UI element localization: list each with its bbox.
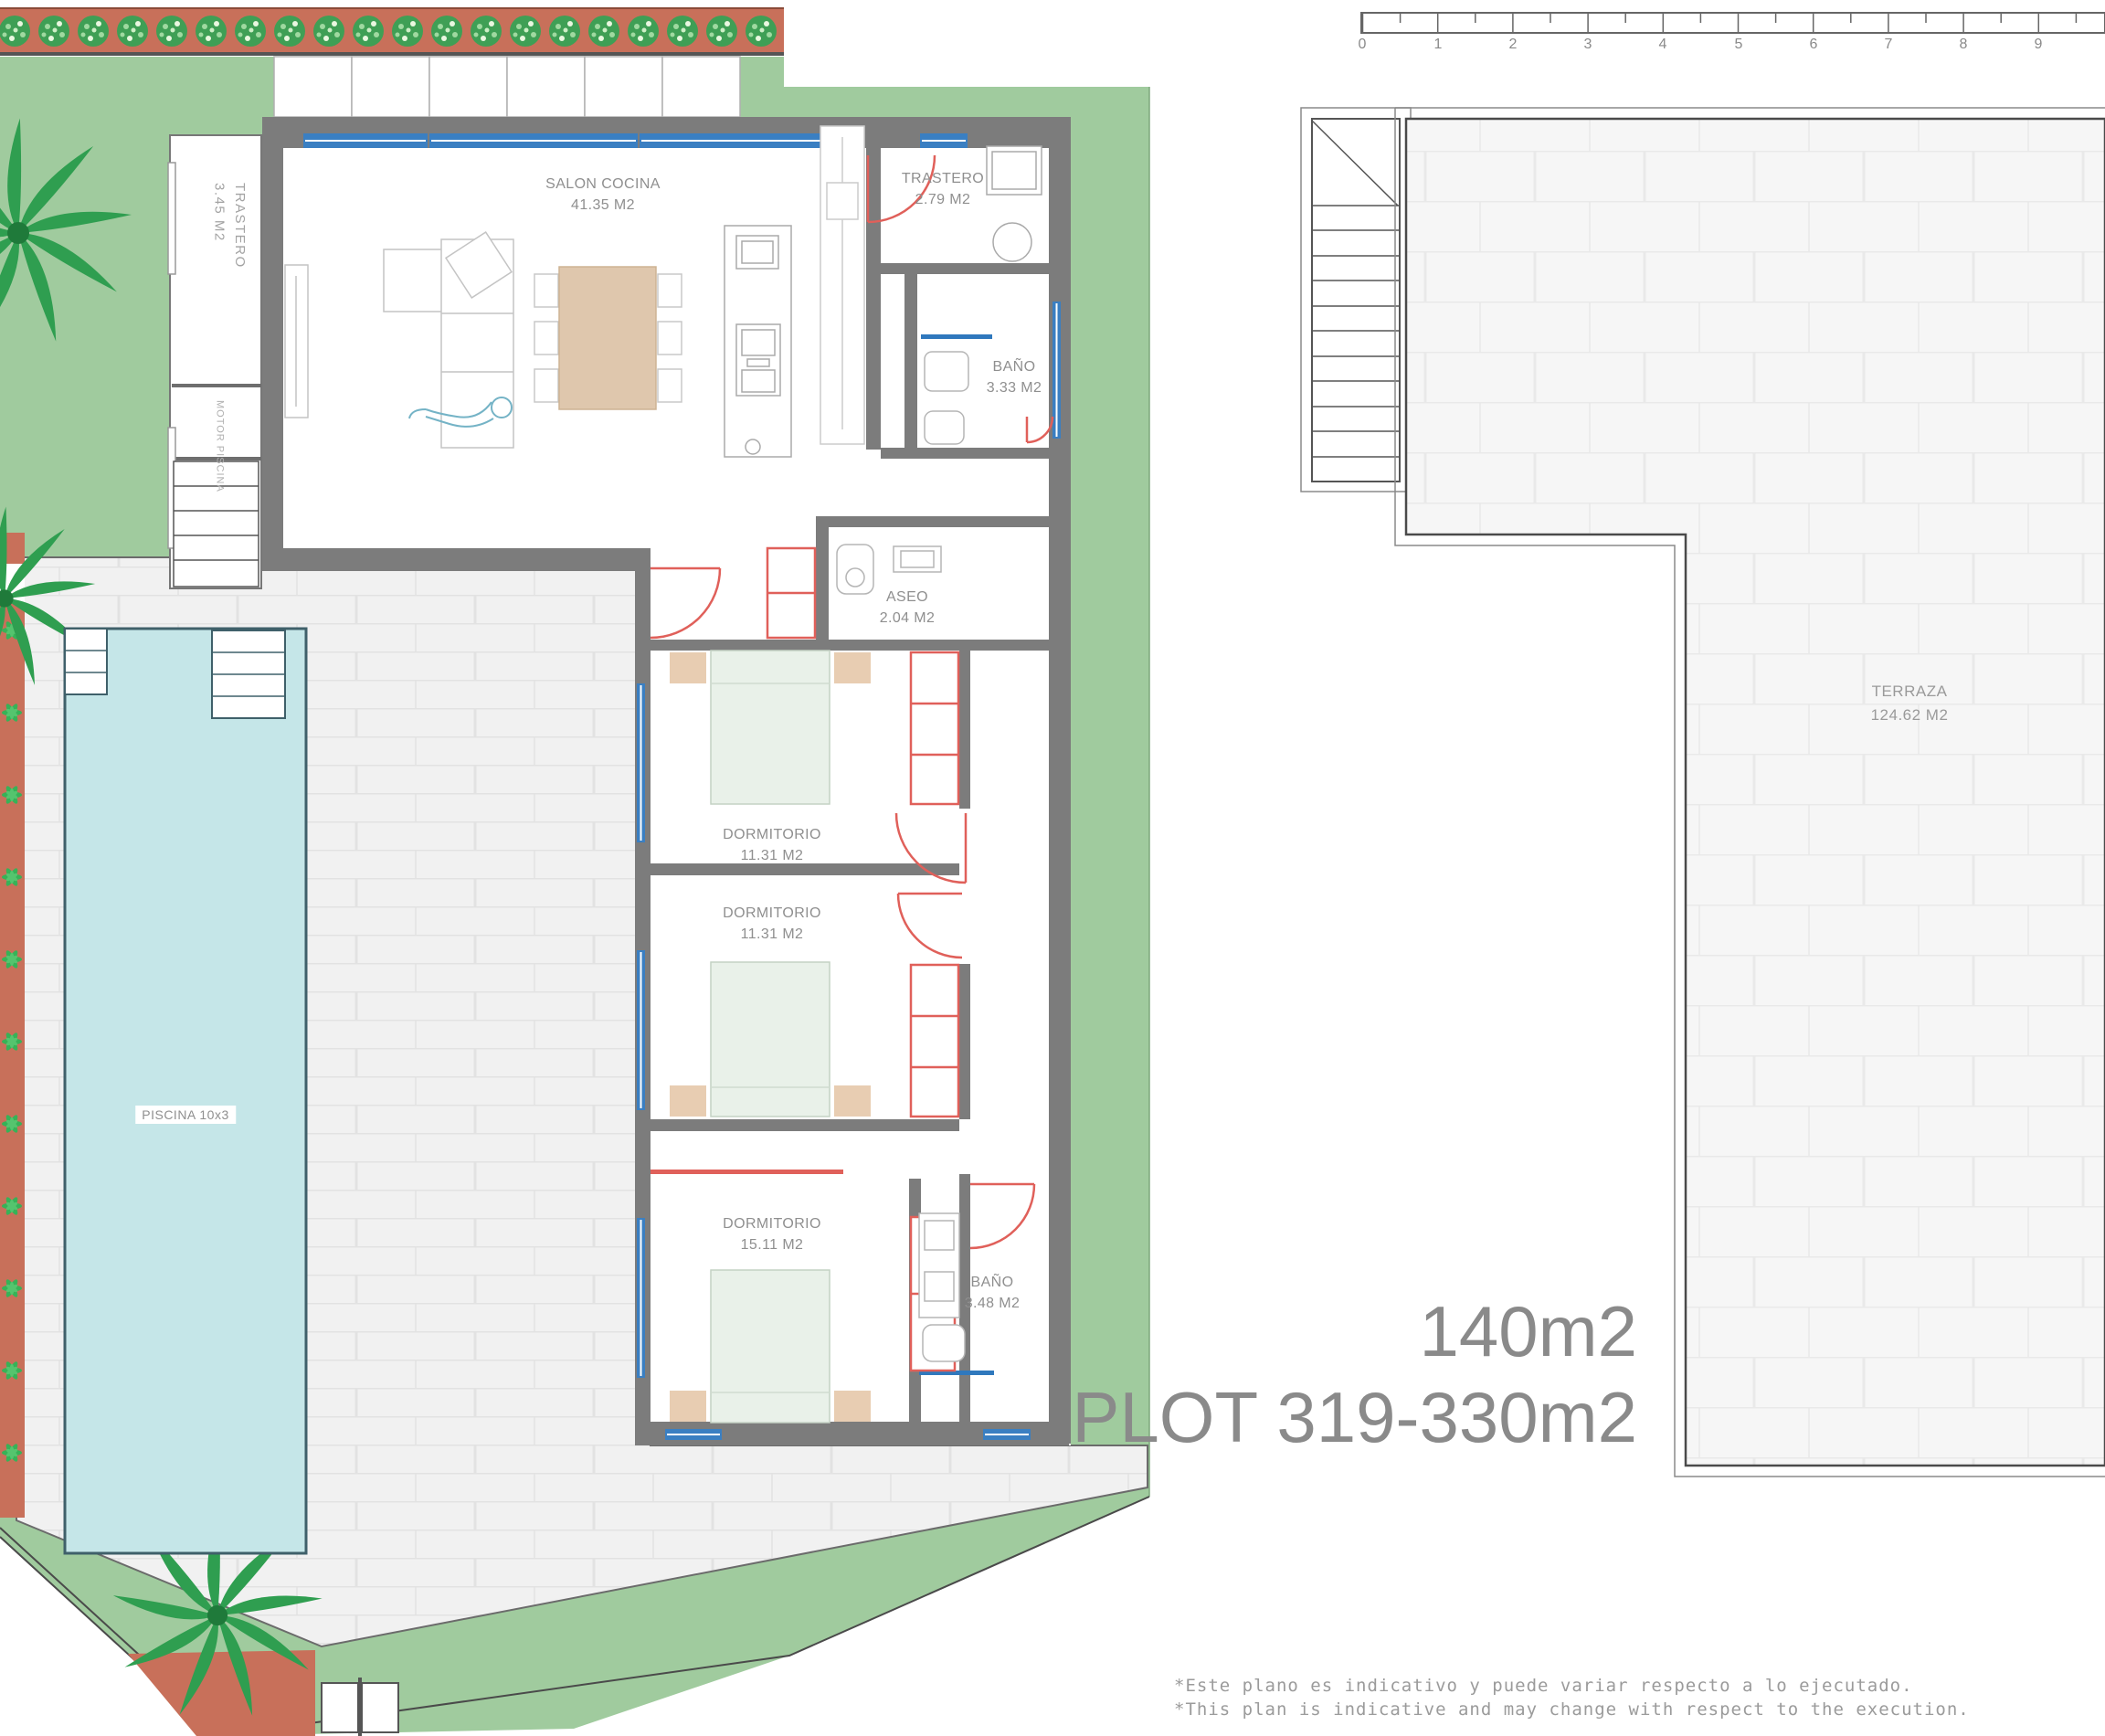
room-name: MOTOR PISCINA bbox=[212, 400, 227, 492]
label-terraza: TERRAZA 124.62 M2 bbox=[1871, 680, 1949, 726]
eaves-row bbox=[274, 57, 740, 117]
room-name: TRASTERO bbox=[902, 168, 984, 189]
room-area: 3.45 M2 bbox=[208, 183, 229, 269]
kitchen-counter bbox=[820, 126, 864, 444]
ruler-number: 0 bbox=[1359, 37, 1367, 53]
room-area: 41.35 M2 bbox=[545, 195, 661, 216]
garden-gate bbox=[322, 1678, 398, 1736]
label-motor-piscina: MOTOR PISCINA bbox=[212, 400, 227, 492]
label-salon-cocina: SALON COCINA 41.35 M2 bbox=[545, 174, 661, 216]
roof-staircase bbox=[1301, 108, 1411, 492]
plot-size-label: PLOT 319-330m2 bbox=[1072, 1381, 1637, 1453]
room-area: 11.31 M2 bbox=[723, 845, 821, 866]
terrace-surface bbox=[1406, 119, 2105, 1466]
room-area: 15.11 M2 bbox=[723, 1234, 821, 1255]
plan-graphics bbox=[0, 0, 2105, 1736]
house-size-label: 140m2 bbox=[1420, 1296, 1638, 1367]
ruler-number: 5 bbox=[1735, 37, 1743, 53]
room-name: PISCINA 10x3 bbox=[142, 1107, 229, 1122]
room-area: 2.04 M2 bbox=[880, 608, 936, 629]
disclaimer-en: *This plan is indicative and may change … bbox=[1174, 1698, 1970, 1721]
label-piscina: PISCINA 10x3 bbox=[135, 1106, 236, 1124]
label-dormitorio-3: DORMITORIO 15.11 M2 bbox=[723, 1213, 821, 1255]
room-name: ASEO bbox=[880, 587, 936, 608]
pool-corner-steps bbox=[212, 630, 285, 718]
room-area: 3.33 M2 bbox=[987, 377, 1042, 398]
room-name: DORMITORIO bbox=[723, 903, 821, 924]
room-name: BAÑO bbox=[987, 356, 1042, 377]
terrace-plan bbox=[1301, 13, 2105, 1477]
label-dormitorio-1: DORMITORIO 11.31 M2 bbox=[723, 824, 821, 866]
label-aseo: ASEO 2.04 M2 bbox=[880, 587, 936, 629]
site-plan bbox=[0, 7, 1149, 1736]
ruler-number: 7 bbox=[1885, 37, 1893, 53]
label-bano-top: BAÑO 3.33 M2 bbox=[987, 356, 1042, 398]
dining-table bbox=[559, 267, 656, 409]
kitchen-island bbox=[725, 226, 791, 457]
planter-bottom bbox=[128, 1650, 315, 1736]
room-name: DORMITORIO bbox=[723, 1213, 821, 1234]
room-name: BAÑO bbox=[965, 1272, 1021, 1293]
ruler-number: 4 bbox=[1659, 37, 1667, 53]
bano-bottom-fixtures bbox=[919, 1213, 965, 1361]
floor-plan-page: SALON COCINA 41.35 M2 TRASTERO 2.79 M2 B… bbox=[0, 0, 2105, 1736]
ruler-number: 6 bbox=[1810, 37, 1818, 53]
hedge-band bbox=[0, 7, 784, 56]
room-area: 2.79 M2 bbox=[902, 189, 984, 210]
label-dormitorio-2: DORMITORIO 11.31 M2 bbox=[723, 903, 821, 945]
room-area: 11.31 M2 bbox=[723, 924, 821, 945]
label-trastero-top: TRASTERO 2.79 M2 bbox=[902, 168, 984, 210]
swimming-pool bbox=[65, 629, 306, 1553]
ruler-number: 1 bbox=[1434, 37, 1443, 53]
pool-steps bbox=[65, 629, 107, 694]
label-bano-bottom: BAÑO 3.48 M2 bbox=[965, 1272, 1021, 1314]
ruler-number: 9 bbox=[2035, 37, 2043, 53]
room-name: SALON COCINA bbox=[545, 174, 661, 195]
disclaimer-es: *Este plano es indicativo y puede variar… bbox=[1174, 1674, 1913, 1698]
room-name: TRASTERO bbox=[229, 183, 250, 269]
painted-wall-red bbox=[651, 1170, 843, 1174]
room-name: TERRAZA bbox=[1871, 680, 1949, 704]
planter-left-strip bbox=[0, 533, 25, 1518]
ruler-number: 8 bbox=[1960, 37, 1968, 53]
ruler-number: 3 bbox=[1584, 37, 1592, 53]
ruler-number: 2 bbox=[1509, 37, 1518, 53]
room-area: 124.62 M2 bbox=[1871, 704, 1949, 727]
room-area: 3.48 M2 bbox=[965, 1293, 1021, 1314]
scale-ruler bbox=[1361, 13, 2105, 33]
label-trastero-left: TRASTERO 3.45 M2 bbox=[208, 183, 249, 269]
room-name: DORMITORIO bbox=[723, 824, 821, 845]
